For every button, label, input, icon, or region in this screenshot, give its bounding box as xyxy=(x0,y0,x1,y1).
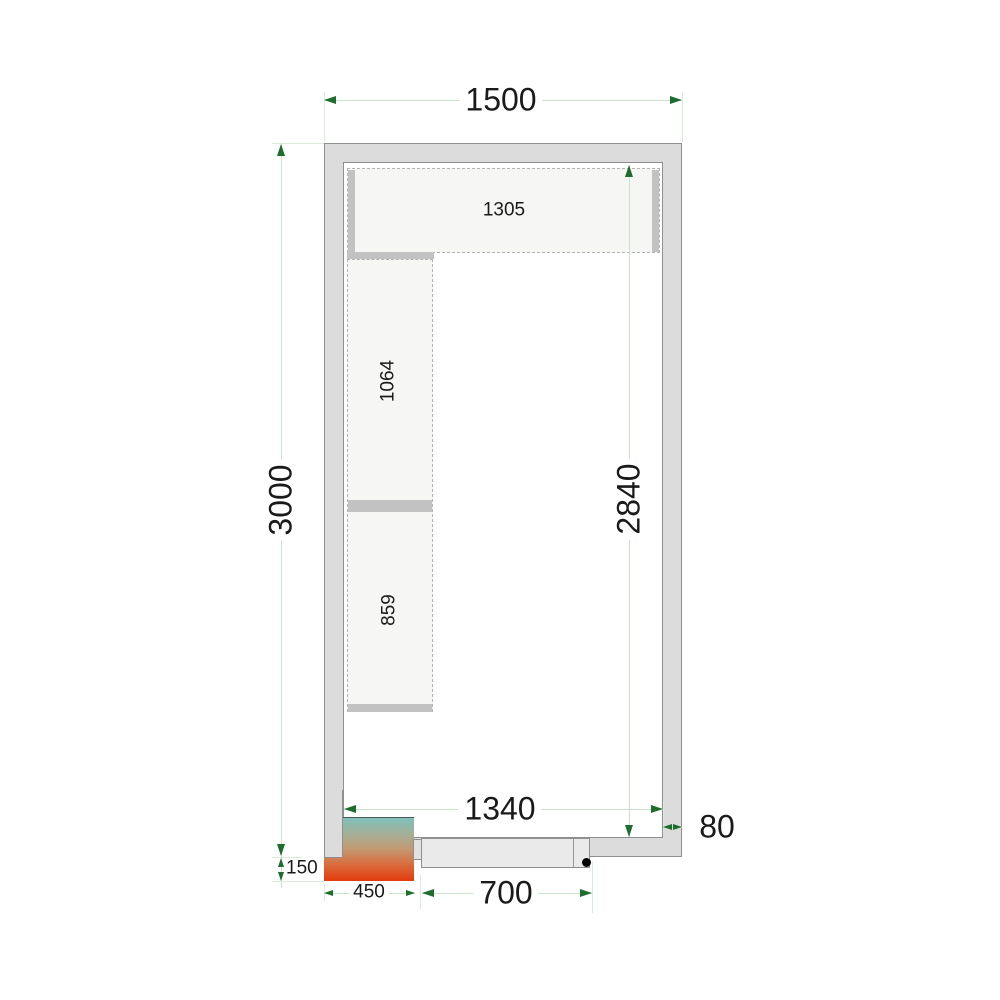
dim-cooler-width-label: 450 xyxy=(349,883,389,904)
dim-wall-thickness-arrow-right xyxy=(673,824,682,830)
ext-line-cooler-door xyxy=(420,874,421,910)
dim-inner-width-arrow-left xyxy=(344,805,356,813)
shelf-divider xyxy=(348,500,432,512)
dim-inner-depth-arrow-top xyxy=(625,165,633,177)
dim-overall-width-label: 1500 xyxy=(459,82,542,117)
shelf-left-lower-length-label: 859 xyxy=(380,590,401,630)
ext-line-cooler-bottom xyxy=(272,881,324,882)
shelf-post-left xyxy=(348,170,355,252)
dim-inner-width-arrow-right xyxy=(651,805,663,813)
dim-overall-width-arrow-left xyxy=(324,96,336,104)
dim-cooler-protrusion-arrow-top xyxy=(278,858,284,867)
shelf-rail-bottom xyxy=(348,704,432,712)
dim-overall-depth-arrow-top xyxy=(277,144,285,156)
shelf-rail-top xyxy=(347,252,434,259)
shelf-left-upper-length-label: 1064 xyxy=(379,356,400,406)
dim-door-width-arrow-left xyxy=(422,889,434,897)
door-leaf xyxy=(421,838,590,868)
dim-overall-depth-label: 3000 xyxy=(263,459,298,540)
dim-cooler-protrusion-label: 150 xyxy=(286,859,318,880)
door-handle-dot xyxy=(582,858,591,867)
shelf-top-length-label: 1305 xyxy=(479,201,529,222)
dim-door-width-arrow-right xyxy=(580,889,592,897)
dim-inner-width-label: 1340 xyxy=(458,791,541,826)
door-leaf-edge-line xyxy=(573,839,574,867)
dim-door-width-label: 700 xyxy=(473,875,538,910)
dim-wall-thickness-arrow-left xyxy=(663,824,672,830)
dim-inner-depth-arrow-bottom xyxy=(625,825,633,837)
dim-wall-thickness-label: 80 xyxy=(693,809,741,844)
shelf-run-left xyxy=(347,259,433,712)
dim-overall-depth-arrow-bottom xyxy=(277,844,285,856)
left-wall-over-cooling-unit xyxy=(324,790,343,858)
dim-cooler-protrusion-arrow-bottom xyxy=(278,872,284,881)
floor-plan-canvas: 1500 3000 2840 1340 80 150 450 700 1305 … xyxy=(0,0,1000,1000)
ext-line-door-right xyxy=(592,861,593,913)
dim-overall-width-arrow-right xyxy=(670,96,682,104)
ext-line-top-right xyxy=(682,92,683,142)
shelf-post-right xyxy=(652,170,659,252)
dim-cooler-width-arrow-left xyxy=(324,890,333,896)
dim-inner-depth-label: 2840 xyxy=(611,458,646,539)
dim-cooler-width-arrow-right xyxy=(406,890,415,896)
